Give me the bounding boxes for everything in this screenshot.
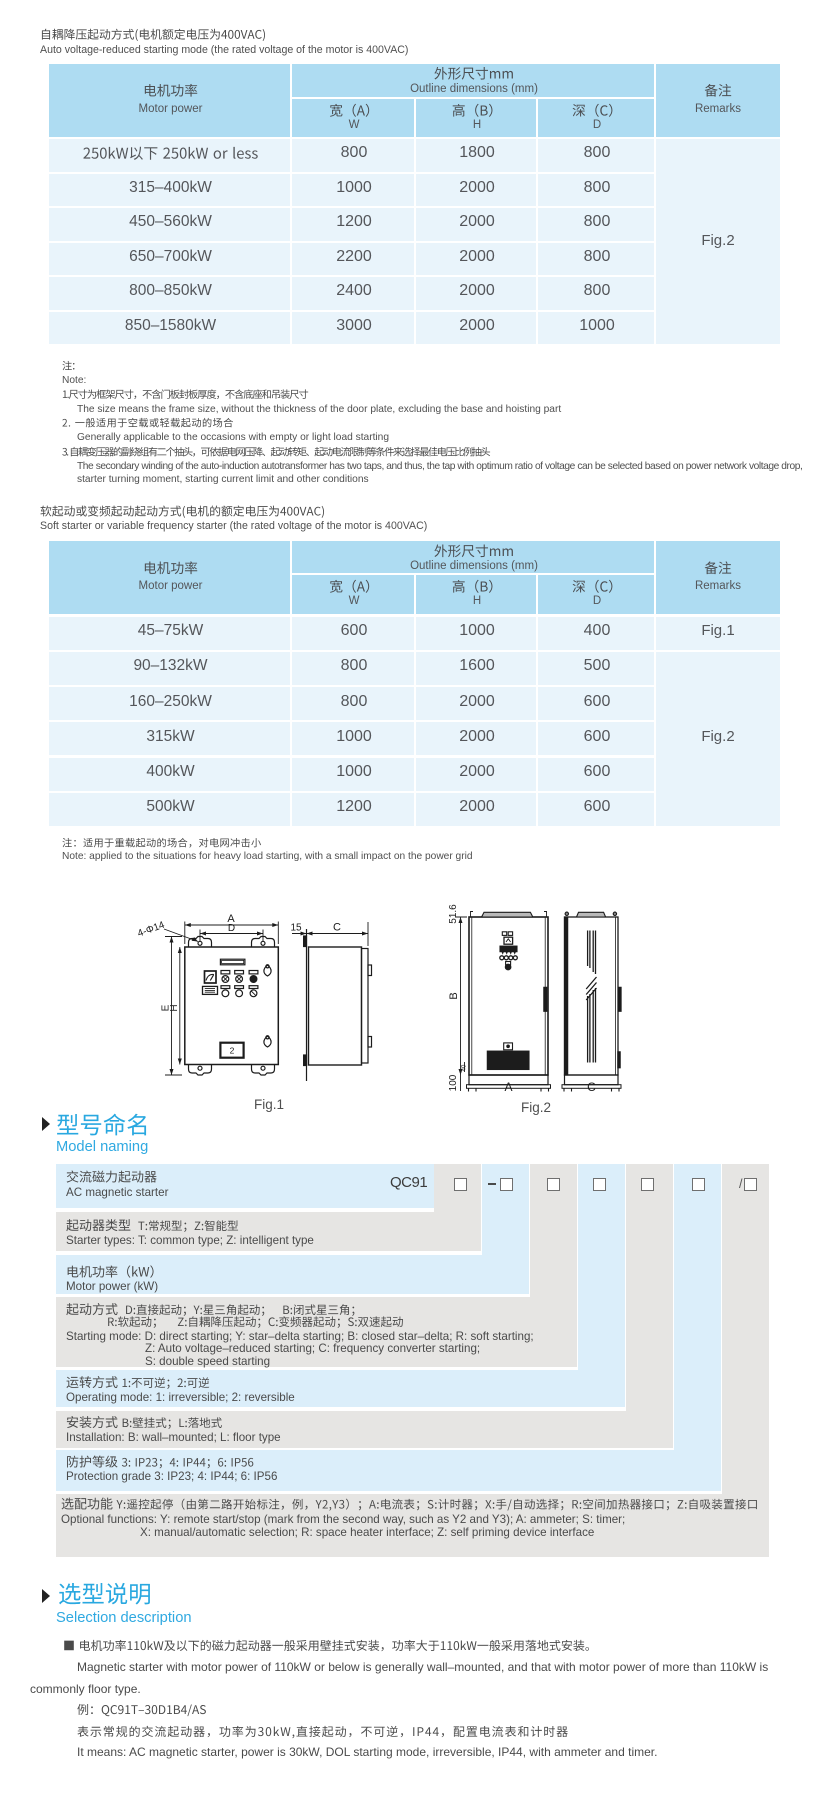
svg-text:E: E — [161, 1004, 172, 1011]
svg-text:B: B — [448, 992, 460, 999]
svg-text:100: 100 — [448, 1074, 459, 1091]
svg-text:40: 40 — [462, 1064, 468, 1071]
svg-text:2: 2 — [230, 1046, 235, 1056]
svg-text:H: H — [169, 1004, 180, 1011]
svg-text:A: A — [504, 1080, 512, 1094]
svg-text:D: D — [228, 923, 235, 934]
svg-text:4-Φ14: 4-Φ14 — [136, 920, 166, 940]
svg-text:A: A — [227, 913, 235, 925]
svg-text:C: C — [587, 1080, 596, 1094]
svg-text:15: 15 — [290, 923, 302, 934]
svg-text:51.6: 51.6 — [448, 904, 459, 924]
svg-text:C: C — [333, 922, 341, 934]
